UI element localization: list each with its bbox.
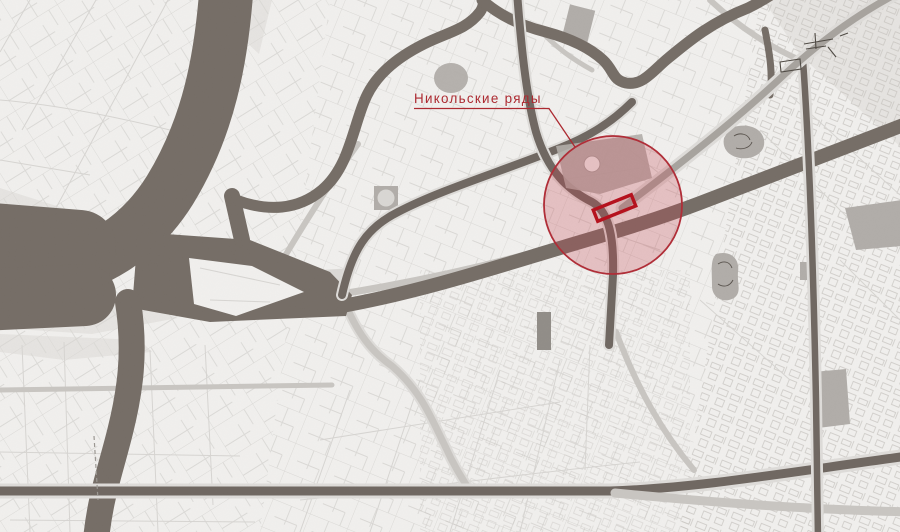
highlight-circle [544,136,682,274]
city-map: Никольские ряды [0,0,900,532]
paper-texture [0,0,900,532]
map-viewport: Никольские ряды [0,0,900,532]
map-label: Никольские ряды [414,91,542,106]
